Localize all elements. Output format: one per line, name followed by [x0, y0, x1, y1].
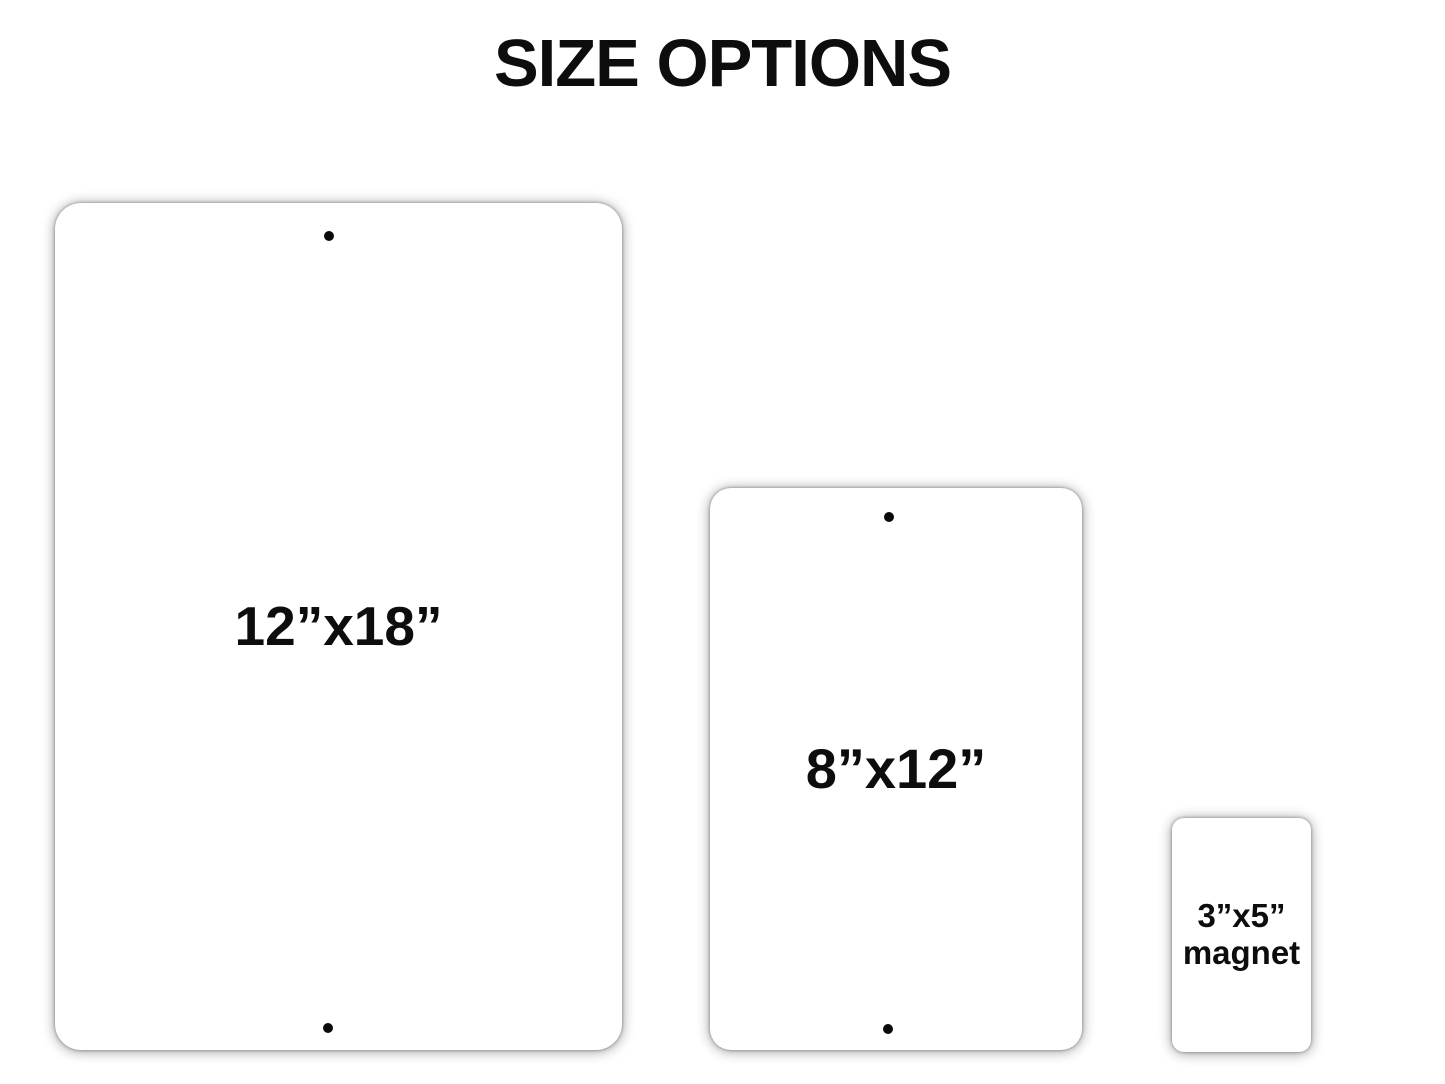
- size-label-3x5-magnet: 3”x5” magnet: [1183, 898, 1300, 972]
- mounting-hole-bottom: [883, 1024, 893, 1034]
- size-option-8x12-sign: 8”x12”: [710, 488, 1082, 1050]
- size-option-12x18-sign: 12”x18”: [55, 203, 622, 1050]
- mounting-hole-top: [884, 512, 894, 522]
- size-option-3x5-magnet: 3”x5” magnet: [1172, 818, 1311, 1052]
- mounting-hole-bottom: [323, 1023, 333, 1033]
- size-label-3x5-line1: 3”x5”: [1197, 897, 1285, 934]
- size-label-3x5-line2: magnet: [1183, 934, 1300, 971]
- size-label-8x12: 8”x12”: [806, 738, 987, 801]
- size-options-graphic: SIZE OPTIONS 12”x18” 8”x12” 3”x5” magnet: [0, 0, 1445, 1084]
- size-label-12x18: 12”x18”: [235, 596, 443, 658]
- mounting-hole-top: [324, 231, 334, 241]
- page-title: SIZE OPTIONS: [0, 30, 1445, 97]
